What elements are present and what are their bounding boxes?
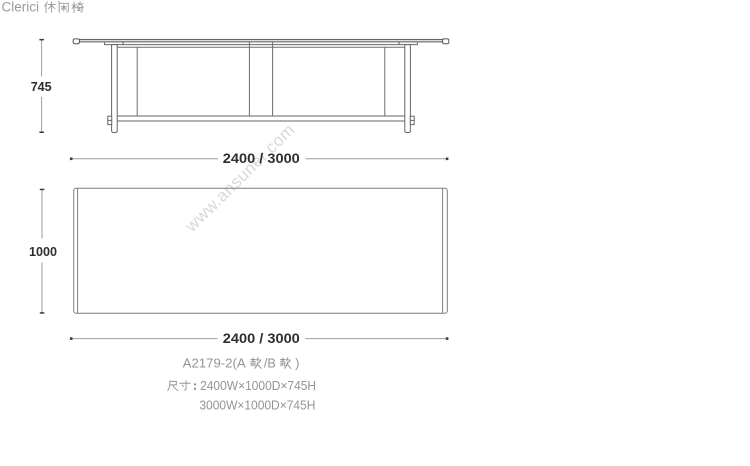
svg-text:/B: /B: [264, 355, 276, 370]
svg-text:1000: 1000: [29, 244, 57, 259]
svg-text:2400 / 3000: 2400 / 3000: [223, 331, 300, 346]
svg-text:2400W×1000D×745H: 2400W×1000D×745H: [200, 379, 316, 393]
svg-text:): ): [295, 355, 299, 370]
svg-text:Clerici: Clerici: [2, 0, 40, 15]
svg-text:A2179-2(A: A2179-2(A: [183, 355, 246, 370]
svg-text:3000W×1000D×745H: 3000W×1000D×745H: [199, 399, 315, 413]
svg-text:2400 / 3000: 2400 / 3000: [223, 151, 300, 166]
svg-text:745: 745: [31, 79, 52, 94]
svg-text:www.ansuner.com: www.ansuner.com: [181, 120, 299, 236]
